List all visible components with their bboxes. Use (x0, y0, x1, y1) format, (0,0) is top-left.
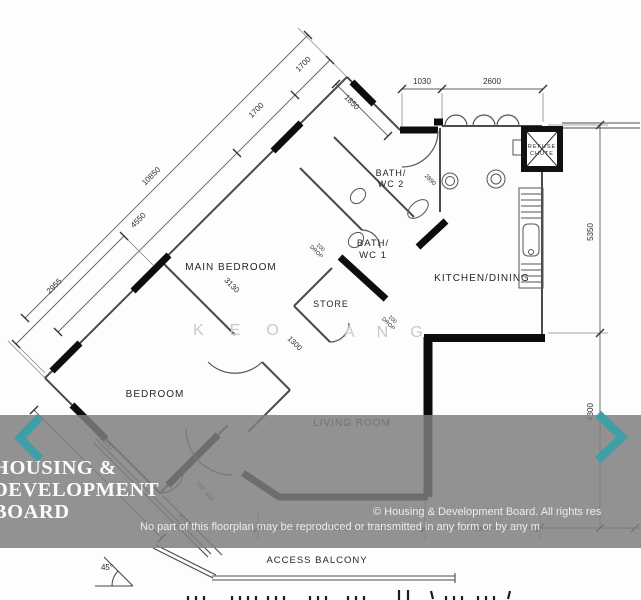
overlay-band: HOUSING & DEVELOPMENT BOARD © Housing & … (0, 415, 641, 548)
floorplan-image: REFUSE CHUTE KEO ANG MAIN BEDROOM BEDROO… (0, 0, 641, 600)
drop-note-1: 100 DROP (308, 240, 328, 260)
dim-main-bedroom-width: 3130 (222, 276, 241, 295)
dim-top-door: 1030 (413, 77, 431, 86)
room-label-bath-wc1-2: WC 1 (359, 250, 387, 261)
dim-bath-wall: 1850 (342, 93, 361, 112)
copyright-line1: © Housing & Development Board. All right… (373, 506, 602, 518)
dim-top-kitchen: 2600 (483, 77, 501, 86)
room-label-access-balcony: ACCESS BALCONY (266, 555, 367, 566)
room-label-main-bedroom: MAIN BEDROOM (185, 262, 276, 273)
angle-annotation: 45° (95, 557, 133, 586)
floorplan-viewer: REFUSE CHUTE KEO ANG MAIN BEDROOM BEDROO… (0, 0, 641, 600)
room-label-kitchen-dining: KITCHEN/DINING (434, 273, 530, 284)
refuse-chute: REFUSE CHUTE (521, 126, 563, 172)
dim-chain-seg3: 1700 (294, 54, 313, 73)
hdb-logo-line2: DEVELOPMENT (0, 479, 159, 501)
hdb-logo-line3: BOARD (0, 501, 70, 523)
room-label-bath-wc2-2: WC 2 (378, 179, 405, 189)
room-label-store: STORE (313, 299, 349, 309)
dim-bedroom-edge: 2955 (45, 276, 64, 295)
room-label-bath-wc1: BATH/ (357, 238, 389, 249)
dim-chain-seg2: 1700 (247, 100, 266, 119)
refuse-chute-label2: CHUTE (530, 151, 554, 157)
fixtures (345, 140, 543, 288)
watermark-text-1: KEO (193, 322, 305, 339)
clipped-text-strip (188, 590, 510, 600)
angle-value: 45° (101, 563, 113, 572)
dim-bath-inner: 2890 (423, 173, 437, 187)
copyright-line2: No part of this floorplan may be reprodu… (140, 521, 540, 533)
room-label-bath-wc2: BATH/ (376, 168, 407, 178)
refuse-chute-label: REFUSE (528, 144, 556, 150)
room-label-bedroom: BEDROOM (126, 389, 185, 400)
hdb-logo-line1: HOUSING & (0, 457, 117, 479)
dim-right-upper: 5350 (586, 223, 595, 241)
dim-chain-seg1: 4550 (129, 210, 148, 229)
